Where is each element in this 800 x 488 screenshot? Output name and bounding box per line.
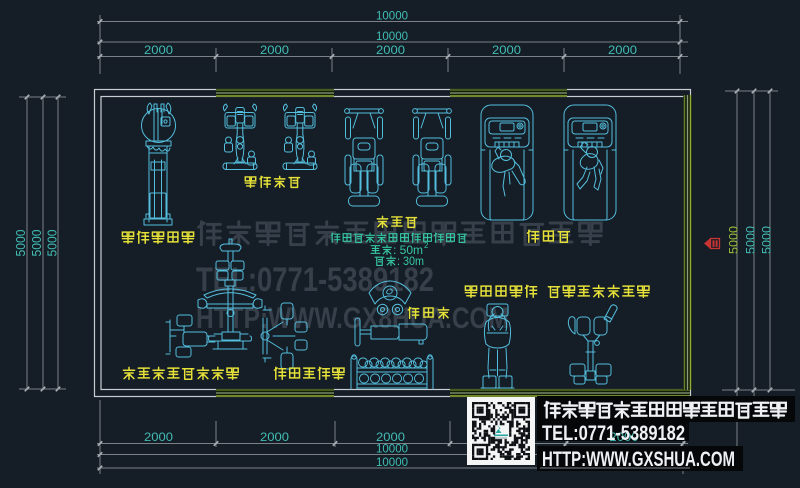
- svg-text:2000: 2000: [260, 43, 289, 57]
- svg-text:5000: 5000: [760, 226, 774, 254]
- svg-text:2000: 2000: [492, 43, 521, 57]
- svg-text:2000: 2000: [144, 430, 173, 444]
- svg-text:HTTP:WWW.GX8HUA.COM: HTTP:WWW.GX8HUA.COM: [196, 302, 509, 335]
- svg-text:10000: 10000: [376, 9, 408, 23]
- svg-text:10000: 10000: [376, 29, 408, 43]
- svg-text:2: 2: [424, 241, 429, 250]
- svg-text:10000: 10000: [376, 455, 408, 469]
- svg-text:2000: 2000: [260, 430, 289, 444]
- svg-text:HTTP:WWW.GXSHUA.COM: HTTP:WWW.GXSHUA.COM: [542, 448, 735, 471]
- svg-text:: 30m: : 30m: [397, 254, 424, 268]
- svg-text:5000: 5000: [46, 229, 60, 256]
- svg-text:5000: 5000: [727, 226, 741, 254]
- svg-text:10000: 10000: [376, 442, 408, 456]
- svg-text:TEL:0771-5389182: TEL:0771-5389182: [542, 422, 685, 445]
- svg-text:2000: 2000: [608, 43, 637, 57]
- svg-text:5000: 5000: [30, 229, 44, 256]
- svg-text:5000: 5000: [14, 229, 28, 256]
- svg-text:2000: 2000: [376, 43, 405, 57]
- svg-text:2000: 2000: [144, 43, 173, 57]
- svg-text:5000: 5000: [744, 226, 758, 254]
